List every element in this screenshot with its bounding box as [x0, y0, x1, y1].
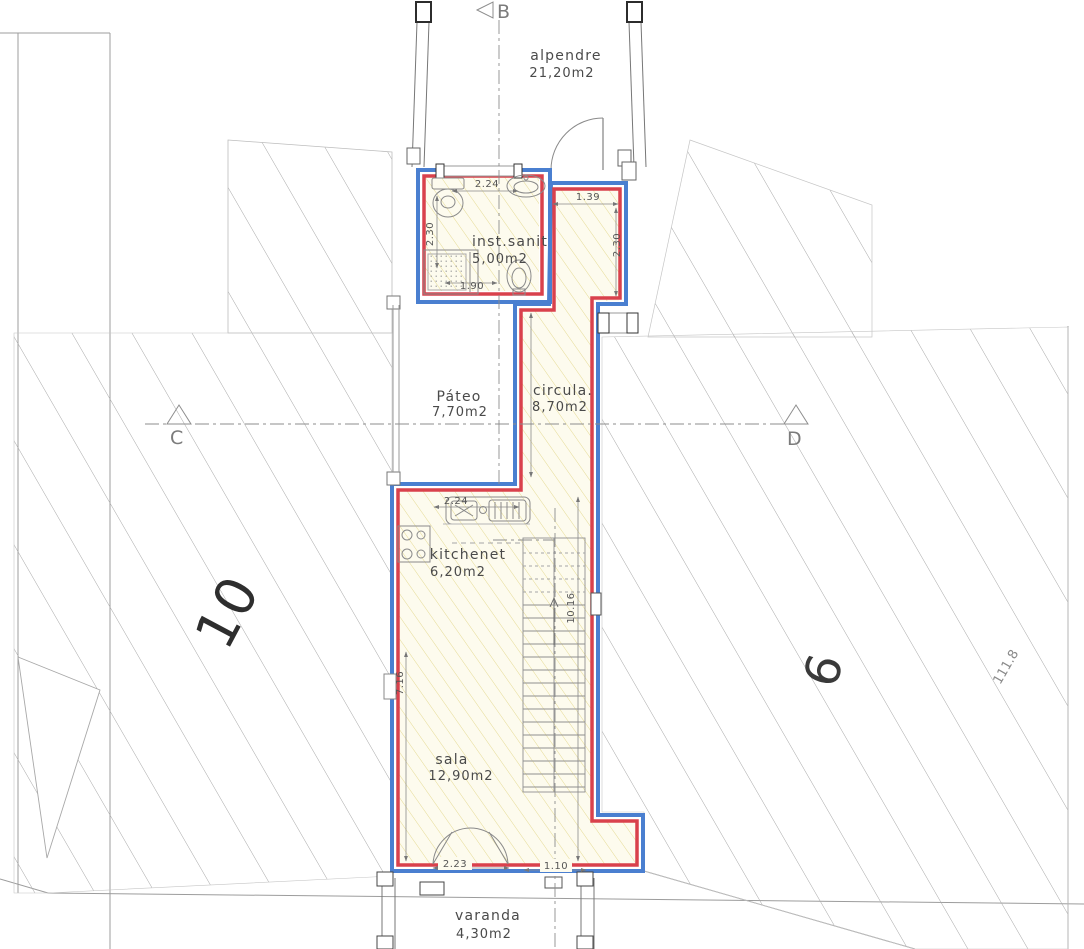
section-arrow-b	[477, 2, 493, 18]
dim-bath-depth: 2.30	[425, 222, 436, 246]
section-label-b: B	[497, 1, 511, 23]
room-area-pateo: 7,70m2	[432, 405, 488, 420]
room-label-varanda: varanda	[455, 908, 521, 924]
varanda-wall-pillar-mid	[420, 882, 444, 895]
room-area-inst-sanit: 5,00m2	[472, 252, 528, 267]
lot-6-upper-hatch	[648, 140, 872, 337]
hall-corner-pillar	[622, 162, 636, 180]
room-area-sala: 12,90m2	[428, 769, 493, 784]
floor-plan-sheet: alpendre 21,20m2 inst.sanit 5,00m2 Páteo…	[0, 0, 1084, 949]
bathroom-window	[443, 166, 515, 176]
floor-plan-drawing: alpendre 21,20m2 inst.sanit 5,00m2 Páteo…	[0, 0, 1084, 949]
room-label-alpendre: alpendre	[530, 48, 601, 64]
varanda-column-bottom-right	[577, 936, 593, 949]
dim-door-double: 2.23	[443, 859, 467, 870]
hall-window-jamb-left	[598, 313, 609, 333]
pateo-pillar-bottom	[387, 472, 400, 485]
varanda-wall-pillar-right	[545, 877, 562, 888]
room-area-alpendre: 21,20m2	[529, 66, 594, 81]
alpendre-structure	[407, 2, 646, 170]
room-label-pateo: Páteo	[436, 389, 481, 405]
lot-10-upper-hatch	[228, 140, 392, 333]
room-area-circula: 8,70m2	[532, 400, 588, 415]
room-area-kitchenet: 6,20m2	[430, 565, 486, 580]
section-label-c: C	[170, 427, 184, 449]
room-label-kitchenet: kitchenet	[430, 547, 506, 563]
dim-sala-length: 7.16	[395, 671, 406, 695]
varanda-column-top-left	[377, 872, 393, 886]
alpendre-pillar-left	[416, 2, 431, 22]
dim-bath-width: 2.24	[475, 179, 499, 190]
dim-hall-depth: 2.30	[612, 233, 623, 257]
dim-kitchen-width: 2.24	[444, 496, 468, 507]
sala-vent-right	[591, 593, 601, 615]
bathroom-window-jamb-left	[436, 164, 444, 178]
varanda-column-bottom-left	[377, 936, 393, 949]
dim-door-single: 1.10	[544, 861, 568, 872]
dim-hall-width: 1.39	[576, 192, 600, 203]
dim-shower-width: 1.90	[460, 281, 484, 292]
entry-door-swing	[551, 118, 603, 170]
lot-6-hatch	[602, 327, 1068, 949]
section-label-d: D	[787, 428, 803, 450]
room-label-circula: circula.	[533, 383, 593, 399]
alpendre-pillar-right	[627, 2, 642, 22]
dim-interior-length: 10.16	[566, 592, 577, 623]
hall-window-jamb-right	[627, 313, 638, 333]
room-area-varanda: 4,30m2	[456, 927, 512, 942]
room-label-sala: sala	[435, 752, 468, 768]
alpendre-pillar-base-left	[407, 148, 420, 164]
varanda-column-top-right	[577, 872, 593, 886]
room-label-inst-sanit: inst.sanit	[472, 234, 548, 250]
